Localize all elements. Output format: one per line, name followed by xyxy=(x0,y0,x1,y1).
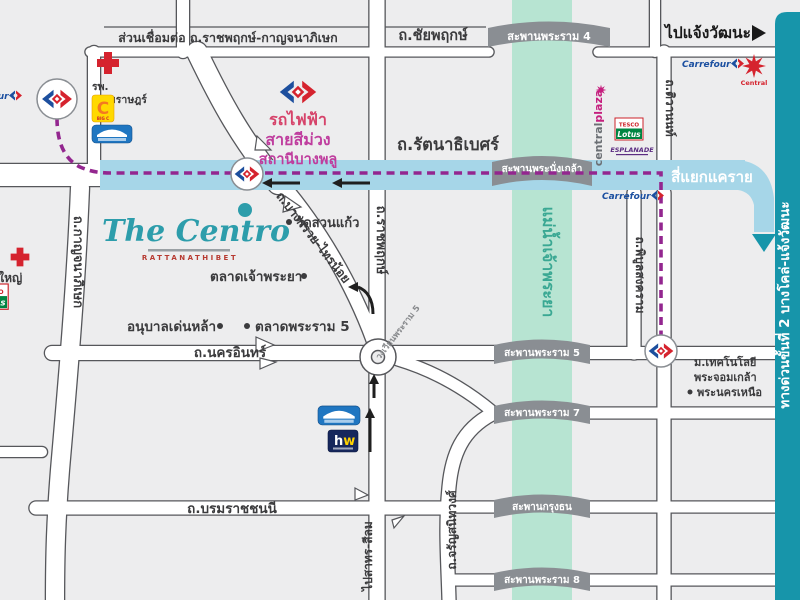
homeworks-logo: hw xyxy=(328,430,358,452)
phibunsongkhram-label: ถ.พิบูลสงคราม xyxy=(632,236,647,313)
bridge-rama4-label: สะพานพระราม 4 xyxy=(507,30,591,43)
centro-logo-text: The Centro xyxy=(102,214,290,249)
anuban-denla-label: อนุบาลเด่นหล้า xyxy=(127,319,216,335)
kmutnb-label-3: พระนครเหนือ xyxy=(697,386,762,399)
rattanathibet-label: ถ.รัตนาธิเบศร์ xyxy=(397,135,499,154)
kmutnb-label-1: ม.เทคโนโลยี xyxy=(694,355,756,369)
centro-logo-subtext: RATTANATHIBET xyxy=(142,254,238,262)
central-text: Central xyxy=(741,79,768,87)
river-label: แม่น้ำเจ้าพระยา xyxy=(539,207,561,318)
location-map: Carrefour TESCO Lotus xyxy=(0,0,800,600)
wat-suan-kaew-label: วัดสวนแก้ว xyxy=(296,215,359,231)
talat-chaophraya-label: ตลาดเจ้าพระยา xyxy=(210,269,302,285)
map-canvas: Carrefour TESCO Lotus xyxy=(0,0,800,600)
to-sathorn-silom-label: ไปสาทร-สีลม xyxy=(360,521,375,593)
to-chaengwattana-label: ไปแจ้งวัฒนะ xyxy=(663,23,751,42)
expressway-bar: ทางด่วนขั้นที่ 2 บางโคล่-แจ้งวัฒนะ xyxy=(774,12,800,600)
chaiyaphruek-label: ถ.ชัยพฤกษ์ xyxy=(398,26,468,44)
bridge-rama7-label: สะพานพระราม 7 xyxy=(504,408,580,419)
bridge-rama5-label: สะพานพระราม 5 xyxy=(504,348,580,359)
mrt-legend-line3: สถานีบางพลู xyxy=(259,151,338,168)
big-c-logo: C BIG C xyxy=(92,95,114,122)
nakhon-in-label: ถ.นครอินทร์ xyxy=(194,344,267,361)
mrt-legend-line1: รถไฟฟ้า xyxy=(269,110,327,129)
mrt-legend-line2: สายสีม่วง xyxy=(265,130,330,149)
charansanitwong-label: ถ.จรัญสนิทวงศ์ xyxy=(445,490,459,570)
bang-yai-label: บางใหญ่ xyxy=(0,270,22,285)
centralplaza-text: centralplaza xyxy=(592,90,605,167)
rattanathibet-road-band xyxy=(100,160,745,190)
bridge-rama8-label: สะพานพระราม 8 xyxy=(504,575,580,586)
big-c-subtext: BIG C xyxy=(97,116,109,121)
esplanade-text: ESPLANADE xyxy=(610,146,654,154)
centro-logo-rule xyxy=(148,249,230,252)
kmutnb-label-2: พระจอมเกล้า xyxy=(694,371,757,384)
hospital-label-1: รพ. xyxy=(92,81,109,93)
borommaratchachonnani-label: ถ.บรมราชชนนี xyxy=(187,501,277,517)
khae-rai-label: สี่แยกแคราย xyxy=(671,166,753,186)
kanchanaphisek-label: ถ.กาญจนาภิเษก xyxy=(70,216,85,308)
bridge-krungthon-label: สะพานกรุงธน xyxy=(512,502,572,513)
esplanade-logo: ESPLANADE xyxy=(610,146,654,155)
talat-rama5-label: ตลาดพระราม 5 xyxy=(255,319,350,335)
ratchaphruek-label: ถ.ราชพฤกษ์ xyxy=(373,206,389,275)
to-chaengwattana: ไปแจ้งวัฒนะ xyxy=(663,23,766,42)
expressway-label: ทางด่วนขั้นที่ 2 บางโคล่-แจ้งวัฒนะ xyxy=(774,201,793,408)
tiwanon-label: ถ.ติวานนท์ xyxy=(663,79,677,137)
homeworks-text: hw xyxy=(334,434,355,449)
connector-road-label: ส่วนเชื่อมต่อ ถ.ราชพฤกษ์-กาญจนาภิเษก xyxy=(118,29,337,45)
centro-logo-dot xyxy=(238,203,252,217)
